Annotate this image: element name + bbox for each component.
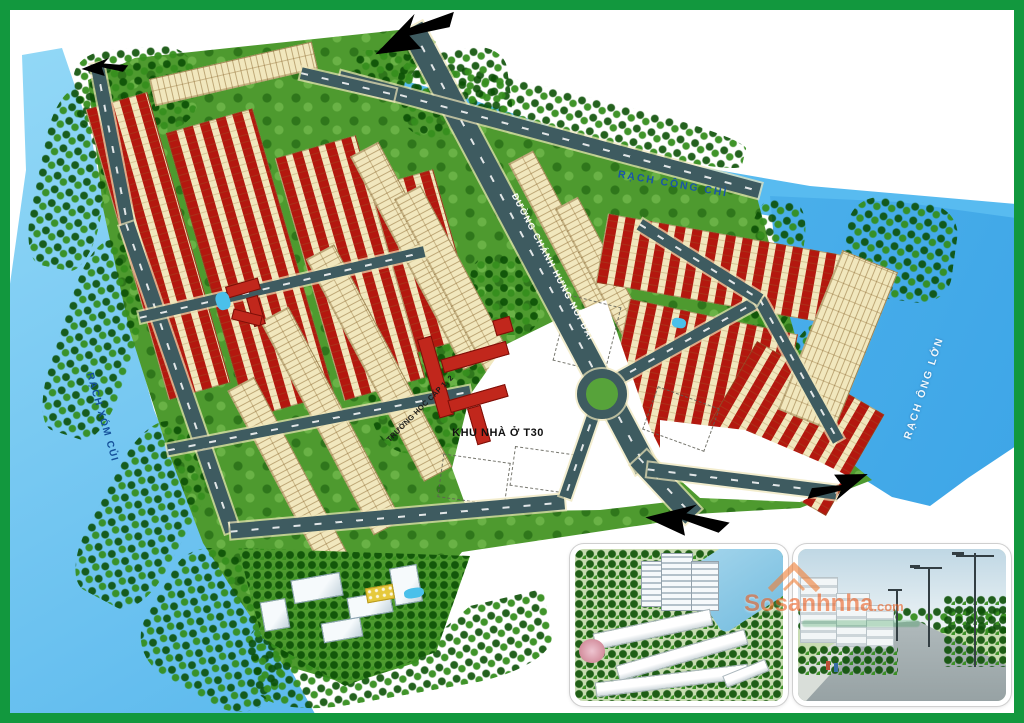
- street-light-lamp: [910, 565, 920, 568]
- apartment-building: [260, 598, 291, 632]
- aerial-tower: [691, 561, 719, 611]
- street-light-pole: [896, 589, 898, 641]
- pedestrian: [834, 663, 838, 672]
- street-house: [800, 577, 838, 643]
- street-light-pole: [928, 567, 930, 647]
- aerial-tower: [661, 553, 693, 611]
- street-shrubs: [798, 645, 898, 675]
- pedestrian: [826, 661, 830, 670]
- street-light-arm: [956, 555, 994, 557]
- street-light-lamp: [952, 552, 964, 555]
- inset-street-photo: [793, 544, 1011, 706]
- inset-aerial-photo: [570, 544, 788, 706]
- plot-t30-label: KHU NHÀ Ở T30: [428, 427, 568, 439]
- street-light-pole: [974, 553, 976, 667]
- street-house: [836, 593, 870, 647]
- master-plan-canvas: RẠCH CÔNG CHÌ RẠCH ÔNG LỚN RẠCH XÓM CỦI …: [0, 0, 1024, 723]
- aerial-tower: [641, 561, 663, 607]
- street-house: [866, 605, 894, 649]
- aerial-pavilion: [579, 639, 605, 663]
- street-light-arm: [888, 589, 902, 591]
